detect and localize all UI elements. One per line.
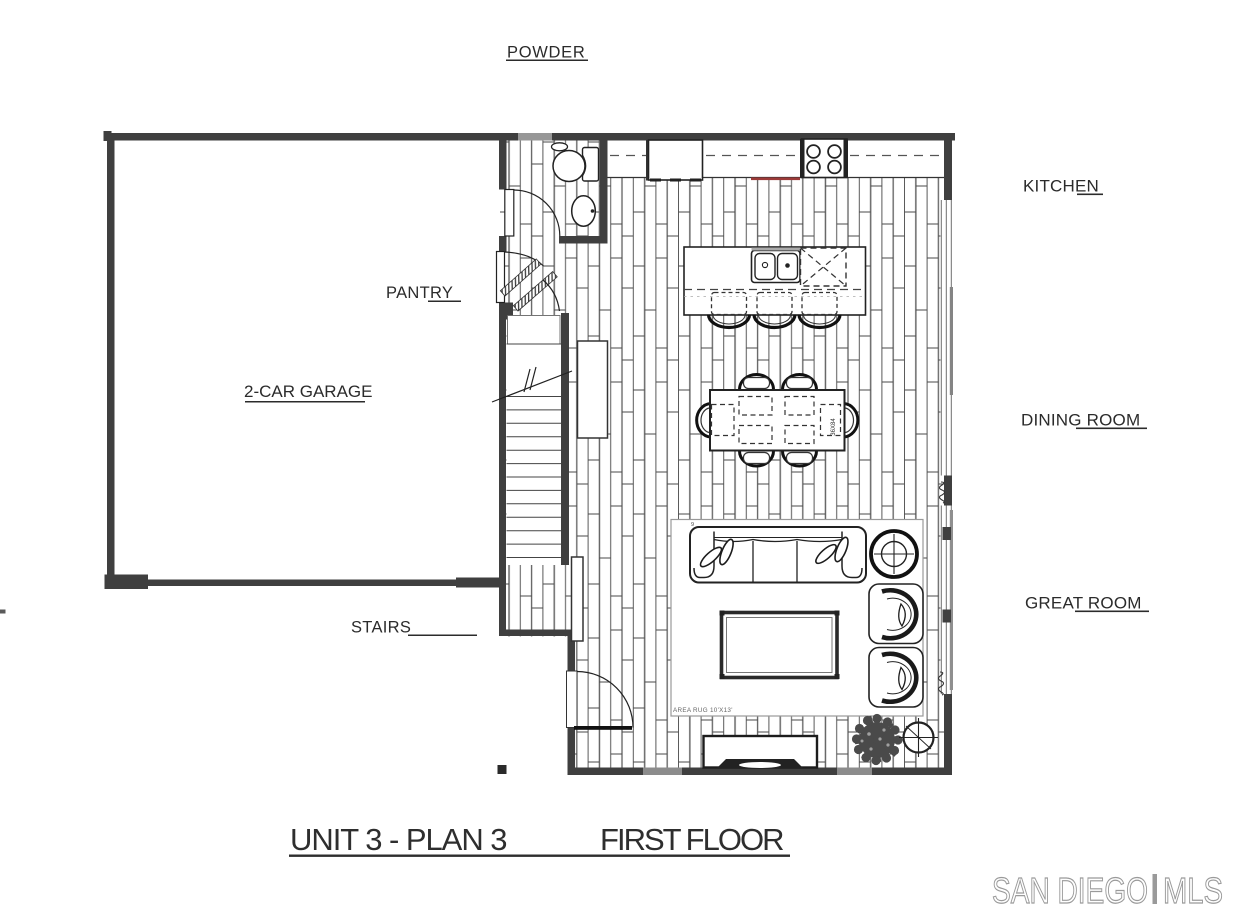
svg-text:36X84: 36X84 bbox=[831, 418, 837, 436]
svg-text:SAN DIEGO: SAN DIEGO bbox=[992, 870, 1148, 911]
svg-text:STAIRS: STAIRS bbox=[351, 619, 411, 637]
svg-text:2-CAR GARAGE: 2-CAR GARAGE bbox=[244, 382, 372, 401]
svg-text:KITCHEN: KITCHEN bbox=[1023, 177, 1099, 196]
svg-text:MLS: MLS bbox=[1163, 870, 1223, 911]
svg-text:9: 9 bbox=[691, 522, 694, 528]
svg-text:UNIT 3 - PLAN 3: UNIT 3 - PLAN 3 bbox=[290, 822, 509, 857]
svg-text:AREA RUG 10'X13': AREA RUG 10'X13' bbox=[673, 707, 733, 714]
svg-text:GREAT ROOM: GREAT ROOM bbox=[1025, 594, 1142, 613]
svg-text:PANTRY: PANTRY bbox=[386, 284, 453, 302]
svg-text:FIRST FLOOR: FIRST FLOOR bbox=[600, 822, 786, 857]
svg-text:POWDER: POWDER bbox=[507, 44, 585, 62]
svg-text:DINING ROOM: DINING ROOM bbox=[1021, 411, 1140, 430]
